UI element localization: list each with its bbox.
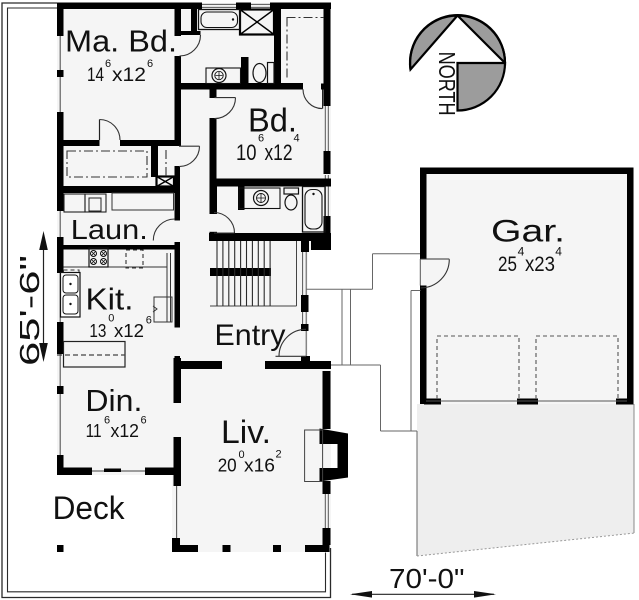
svg-text:x12: x12: [114, 321, 144, 341]
svg-text:4: 4: [294, 133, 300, 145]
svg-text:x12: x12: [265, 140, 293, 165]
svg-text:NORTH: NORTH: [434, 52, 460, 116]
svg-text:65'-6": 65'-6": [14, 255, 45, 366]
svg-text:6: 6: [147, 58, 153, 70]
svg-text:Laun.: Laun.: [71, 214, 148, 245]
svg-text:14: 14: [87, 65, 104, 86]
svg-text:x12: x12: [111, 421, 140, 441]
svg-text:Deck: Deck: [53, 490, 126, 526]
svg-text:20: 20: [218, 454, 237, 475]
svg-text:Bd.: Bd.: [248, 103, 297, 140]
svg-text:6: 6: [141, 414, 147, 426]
svg-text:13: 13: [89, 321, 106, 341]
svg-text:Entry: Entry: [215, 319, 286, 352]
svg-text:x23: x23: [525, 252, 555, 276]
svg-text:x16: x16: [244, 454, 275, 475]
svg-text:4: 4: [555, 245, 562, 259]
svg-text:2: 2: [276, 449, 282, 461]
svg-text:Ma. Bd.: Ma. Bd.: [65, 24, 177, 59]
svg-text:Kit.: Kit.: [86, 281, 134, 316]
svg-text:x12: x12: [112, 65, 146, 86]
svg-text:Gar.: Gar.: [491, 212, 565, 248]
svg-text:4: 4: [518, 245, 525, 259]
svg-text:Din.: Din.: [85, 383, 142, 418]
svg-text:6: 6: [146, 315, 152, 327]
svg-text:11: 11: [86, 421, 102, 441]
svg-text:25: 25: [498, 252, 517, 276]
svg-text:10: 10: [236, 140, 257, 165]
svg-text:70'-0": 70'-0": [389, 563, 465, 594]
svg-text:6: 6: [258, 133, 264, 145]
svg-text:6: 6: [104, 414, 110, 426]
svg-text:Liv.: Liv.: [221, 414, 271, 450]
svg-text:6: 6: [105, 58, 111, 70]
